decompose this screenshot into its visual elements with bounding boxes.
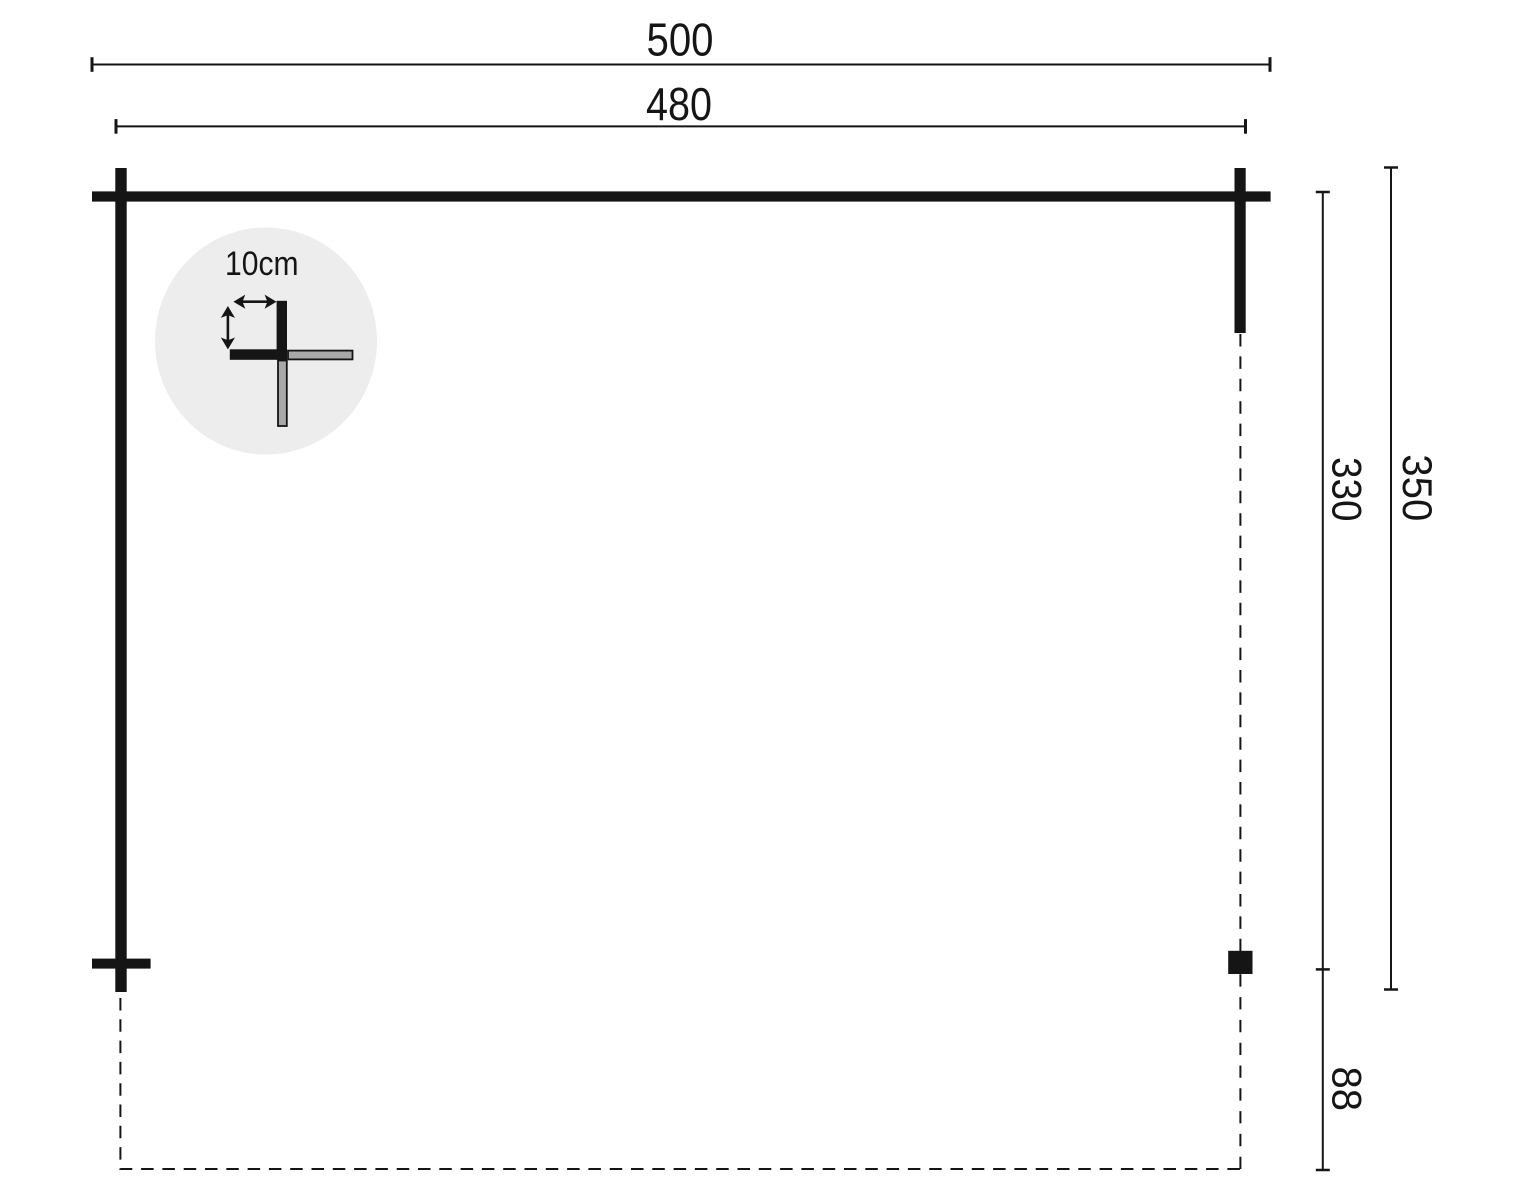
svg-text:330: 330 xyxy=(1324,457,1371,522)
svg-text:350: 350 xyxy=(1394,454,1441,521)
svg-text:88: 88 xyxy=(1324,1067,1371,1112)
svg-text:10cm: 10cm xyxy=(225,245,299,283)
svg-text:500: 500 xyxy=(647,14,714,66)
svg-text:480: 480 xyxy=(646,78,712,130)
